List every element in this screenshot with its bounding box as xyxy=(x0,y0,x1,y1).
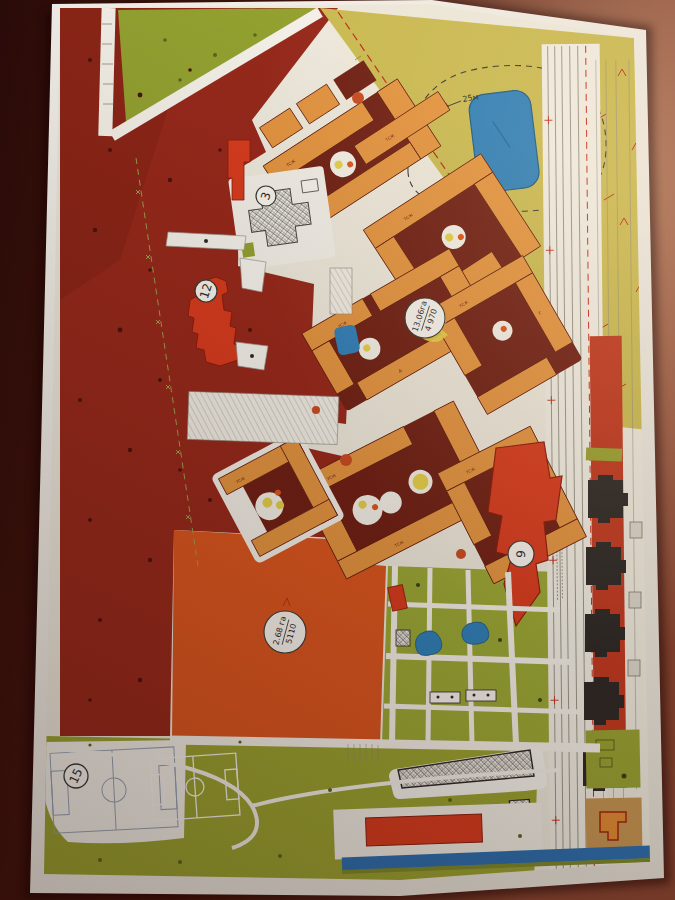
scene: 25м xyxy=(0,0,675,900)
parking-strip xyxy=(187,391,339,444)
parking-strip-small xyxy=(330,268,352,314)
school-number-badge: 3 xyxy=(256,186,276,206)
building-red-long xyxy=(366,814,483,846)
strip-olive-small xyxy=(586,447,622,461)
site-plan: 25м xyxy=(30,0,670,900)
photo-of-site-plan: 25м xyxy=(0,0,675,900)
building-9-number: 9 xyxy=(514,550,529,559)
